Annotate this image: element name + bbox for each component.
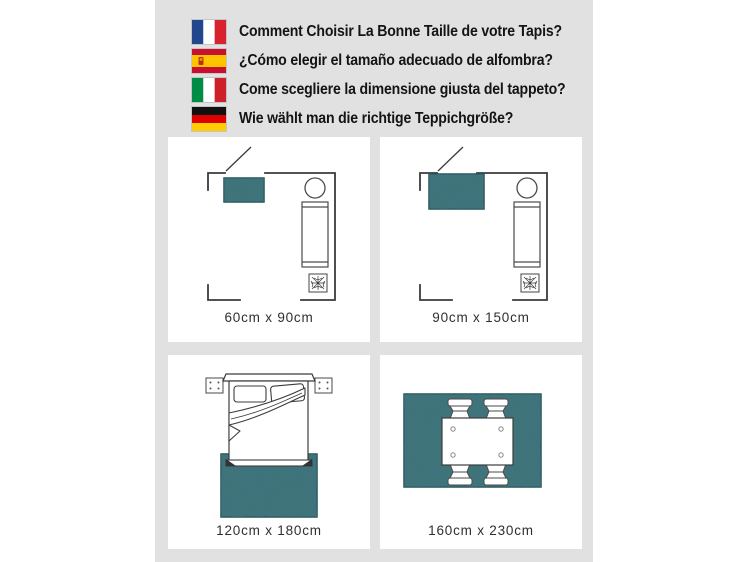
bedroom-rug-illustration	[168, 355, 370, 549]
rug-size-label: 90cm x 150cm	[380, 310, 582, 325]
dining-rug-illustration	[380, 355, 582, 549]
plant	[309, 274, 327, 292]
infographic-canvas: Comment Choisir La Bonne Taille de votre…	[0, 0, 750, 562]
france-flag-icon	[192, 20, 226, 44]
header-title-italian: Come scegliere la dimensione giusta del …	[239, 81, 565, 99]
header-title-french: Comment Choisir La Bonne Taille de votre…	[239, 23, 562, 41]
rug-size-label: 60cm x 90cm	[168, 310, 370, 325]
rug-size-label: 160cm x 230cm	[380, 523, 582, 538]
panel-dining-rug: 160cm x 230cm	[380, 355, 582, 549]
round-table	[305, 178, 325, 198]
italy-flag-icon	[192, 78, 226, 102]
lang-row-german: Wie wählt man die richtige Teppichgröße?	[192, 107, 610, 131]
chair-bottom-right	[484, 464, 508, 485]
headboard	[223, 374, 315, 381]
header-title-spanish: ¿Cómo elegir el tamaño adecuado de alfom…	[239, 52, 553, 70]
round-table	[517, 178, 537, 198]
lang-row-french: Comment Choisir La Bonne Taille de votre…	[192, 20, 610, 44]
header: Comment Choisir La Bonne Taille de votre…	[192, 20, 610, 131]
dining-table	[442, 418, 513, 465]
panel-room-small-rug: 60cm x 90cm	[168, 137, 370, 342]
lang-row-italian: Come scegliere la dimensione giusta del …	[192, 78, 610, 102]
footboard	[226, 459, 312, 466]
header-title-german: Wie wählt man die richtige Teppichgröße?	[239, 110, 513, 128]
chair-bottom-left	[448, 464, 472, 485]
rug-60x90	[224, 178, 264, 202]
chair-top-right	[484, 399, 508, 419]
plant	[521, 274, 539, 292]
sofa	[514, 202, 540, 267]
nightstand-right	[315, 378, 332, 393]
sofa	[302, 202, 328, 267]
spain-flag-icon	[192, 49, 226, 73]
panel-bedroom-rug: 120cm x 180cm	[168, 355, 370, 549]
rug-size-label: 120cm x 180cm	[168, 523, 370, 538]
panel-room-large-rug: 90cm x 150cm	[380, 137, 582, 342]
nightstand-left	[206, 378, 223, 393]
lang-row-spanish: ¿Cómo elegir el tamaño adecuado de alfom…	[192, 49, 610, 73]
rug-90x150	[429, 174, 484, 209]
germany-flag-icon	[192, 107, 226, 131]
chair-top-left	[448, 399, 472, 419]
